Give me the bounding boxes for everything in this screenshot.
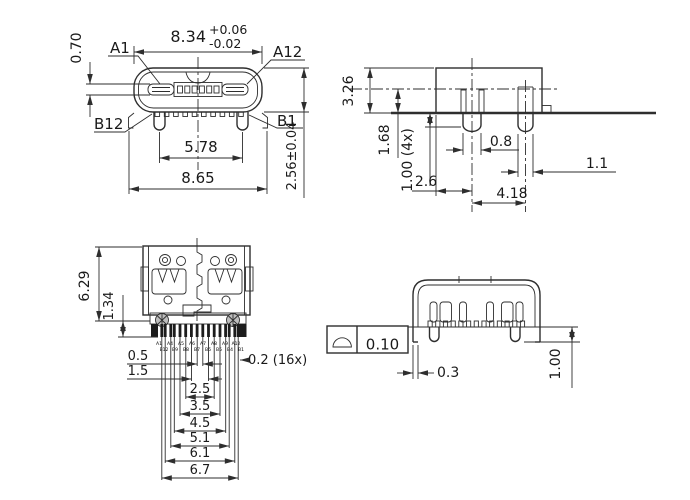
dim-pad-width: 0.2 (16x) — [248, 353, 307, 368]
dim-front-leg-width: 0.8 — [490, 134, 512, 150]
dim-ladder-4: 4.5 — [190, 416, 211, 431]
side-body — [436, 68, 542, 113]
profile-of-surface-icon — [333, 338, 351, 347]
svg-text:B5: B5 — [216, 347, 222, 353]
label-a1: A1 — [110, 39, 130, 57]
dim-center-height: 1.68 — [377, 124, 393, 155]
technical-drawing-usb-c-connector: 8.34 +0.06 -0.02 A1 A12 B12 B1 0.70 5.78… — [0, 0, 690, 500]
coplanarity-value: 0.10 — [366, 336, 399, 354]
svg-text:A12: A12 — [232, 341, 241, 347]
svg-text:B1: B1 — [238, 347, 244, 353]
svg-text:B12: B12 — [160, 347, 169, 353]
dim-ladder-6: 6.1 — [190, 446, 211, 461]
dim-overall-width: 8.65 — [181, 169, 214, 187]
svg-text:B4: B4 — [227, 347, 233, 353]
svg-text:A5: A5 — [178, 341, 184, 347]
dim-ladder-7: 6.7 — [190, 463, 211, 478]
dim-depth: 6.29 — [77, 270, 93, 301]
rear-right-peg — [511, 327, 521, 342]
label-a12: A12 — [273, 43, 302, 61]
center-breakline — [197, 238, 202, 321]
dim-width-tol-plus: +0.06 — [209, 22, 247, 37]
dim-ladder-3: 3.5 — [190, 399, 211, 414]
label-b12: B12 — [94, 115, 123, 133]
dim-leg-length: 1.00 (4x) — [400, 128, 416, 192]
svg-text:A1: A1 — [156, 341, 162, 347]
tongue-left-contact — [148, 84, 174, 95]
svg-text:A9: A9 — [222, 341, 228, 347]
dim-rear-leg-height: 1.00 — [548, 348, 564, 379]
dim-body-height: 3.26 — [341, 75, 357, 106]
coplanarity-callout: 0.10 — [327, 326, 408, 354]
svg-text:A4: A4 — [167, 341, 173, 347]
left-latch — [152, 269, 186, 294]
left-flange — [129, 113, 135, 128]
dim-leg-spacing: 4.18 — [496, 186, 527, 202]
dim-ladder-1: 1.5 — [128, 364, 149, 379]
top-view: A1 A4 A5 A6 A7 A8 A9 A12 B12 B9 B8 B7 B6… — [77, 238, 307, 480]
contact-comb — [430, 302, 523, 322]
dim-lead-width: 0.3 — [437, 365, 459, 381]
rear-shell-outer — [413, 280, 540, 342]
pin-labels: A1 A4 A5 A6 A7 A8 A9 A12 B12 B9 B8 B7 B6… — [156, 341, 244, 353]
dim-leg-span: 5.78 — [184, 138, 217, 156]
dim-rear-leg-width: 1.1 — [586, 156, 608, 172]
dim-ladder-5: 5.1 — [190, 431, 211, 446]
dim-ladder-2: 2.5 — [190, 382, 211, 397]
right-flange — [262, 113, 268, 128]
side-view: 3.26 1.68 1.00 (4x) 0.8 1.1 2.6 4.18 — [341, 58, 656, 212]
rear-view: 0.10 0.3 1.00 — [327, 276, 580, 388]
front-view: 8.34 +0.06 -0.02 A1 A12 B12 B1 0.70 5.78… — [69, 22, 309, 198]
svg-text:A6: A6 — [189, 341, 195, 347]
rear-left-peg — [430, 327, 440, 342]
dim-width: 8.34 — [170, 27, 206, 46]
dim-ladder-0: 0.5 — [128, 349, 149, 364]
dim-height: 2.56±0.04 — [285, 122, 300, 191]
drawing-sheet: 8.34 +0.06 -0.02 A1 A12 B12 B1 0.70 5.78… — [0, 0, 690, 500]
dim-width-tol-minus: -0.02 — [209, 36, 241, 51]
dim-tail-length: 1.34 — [102, 292, 117, 321]
svg-text:B9: B9 — [172, 347, 178, 353]
dim-leg-offset: 2.6 — [415, 174, 437, 190]
dim-tongue-thickness: 0.70 — [69, 32, 85, 63]
right-latch — [208, 269, 242, 294]
tongue-right-contact — [222, 84, 248, 95]
